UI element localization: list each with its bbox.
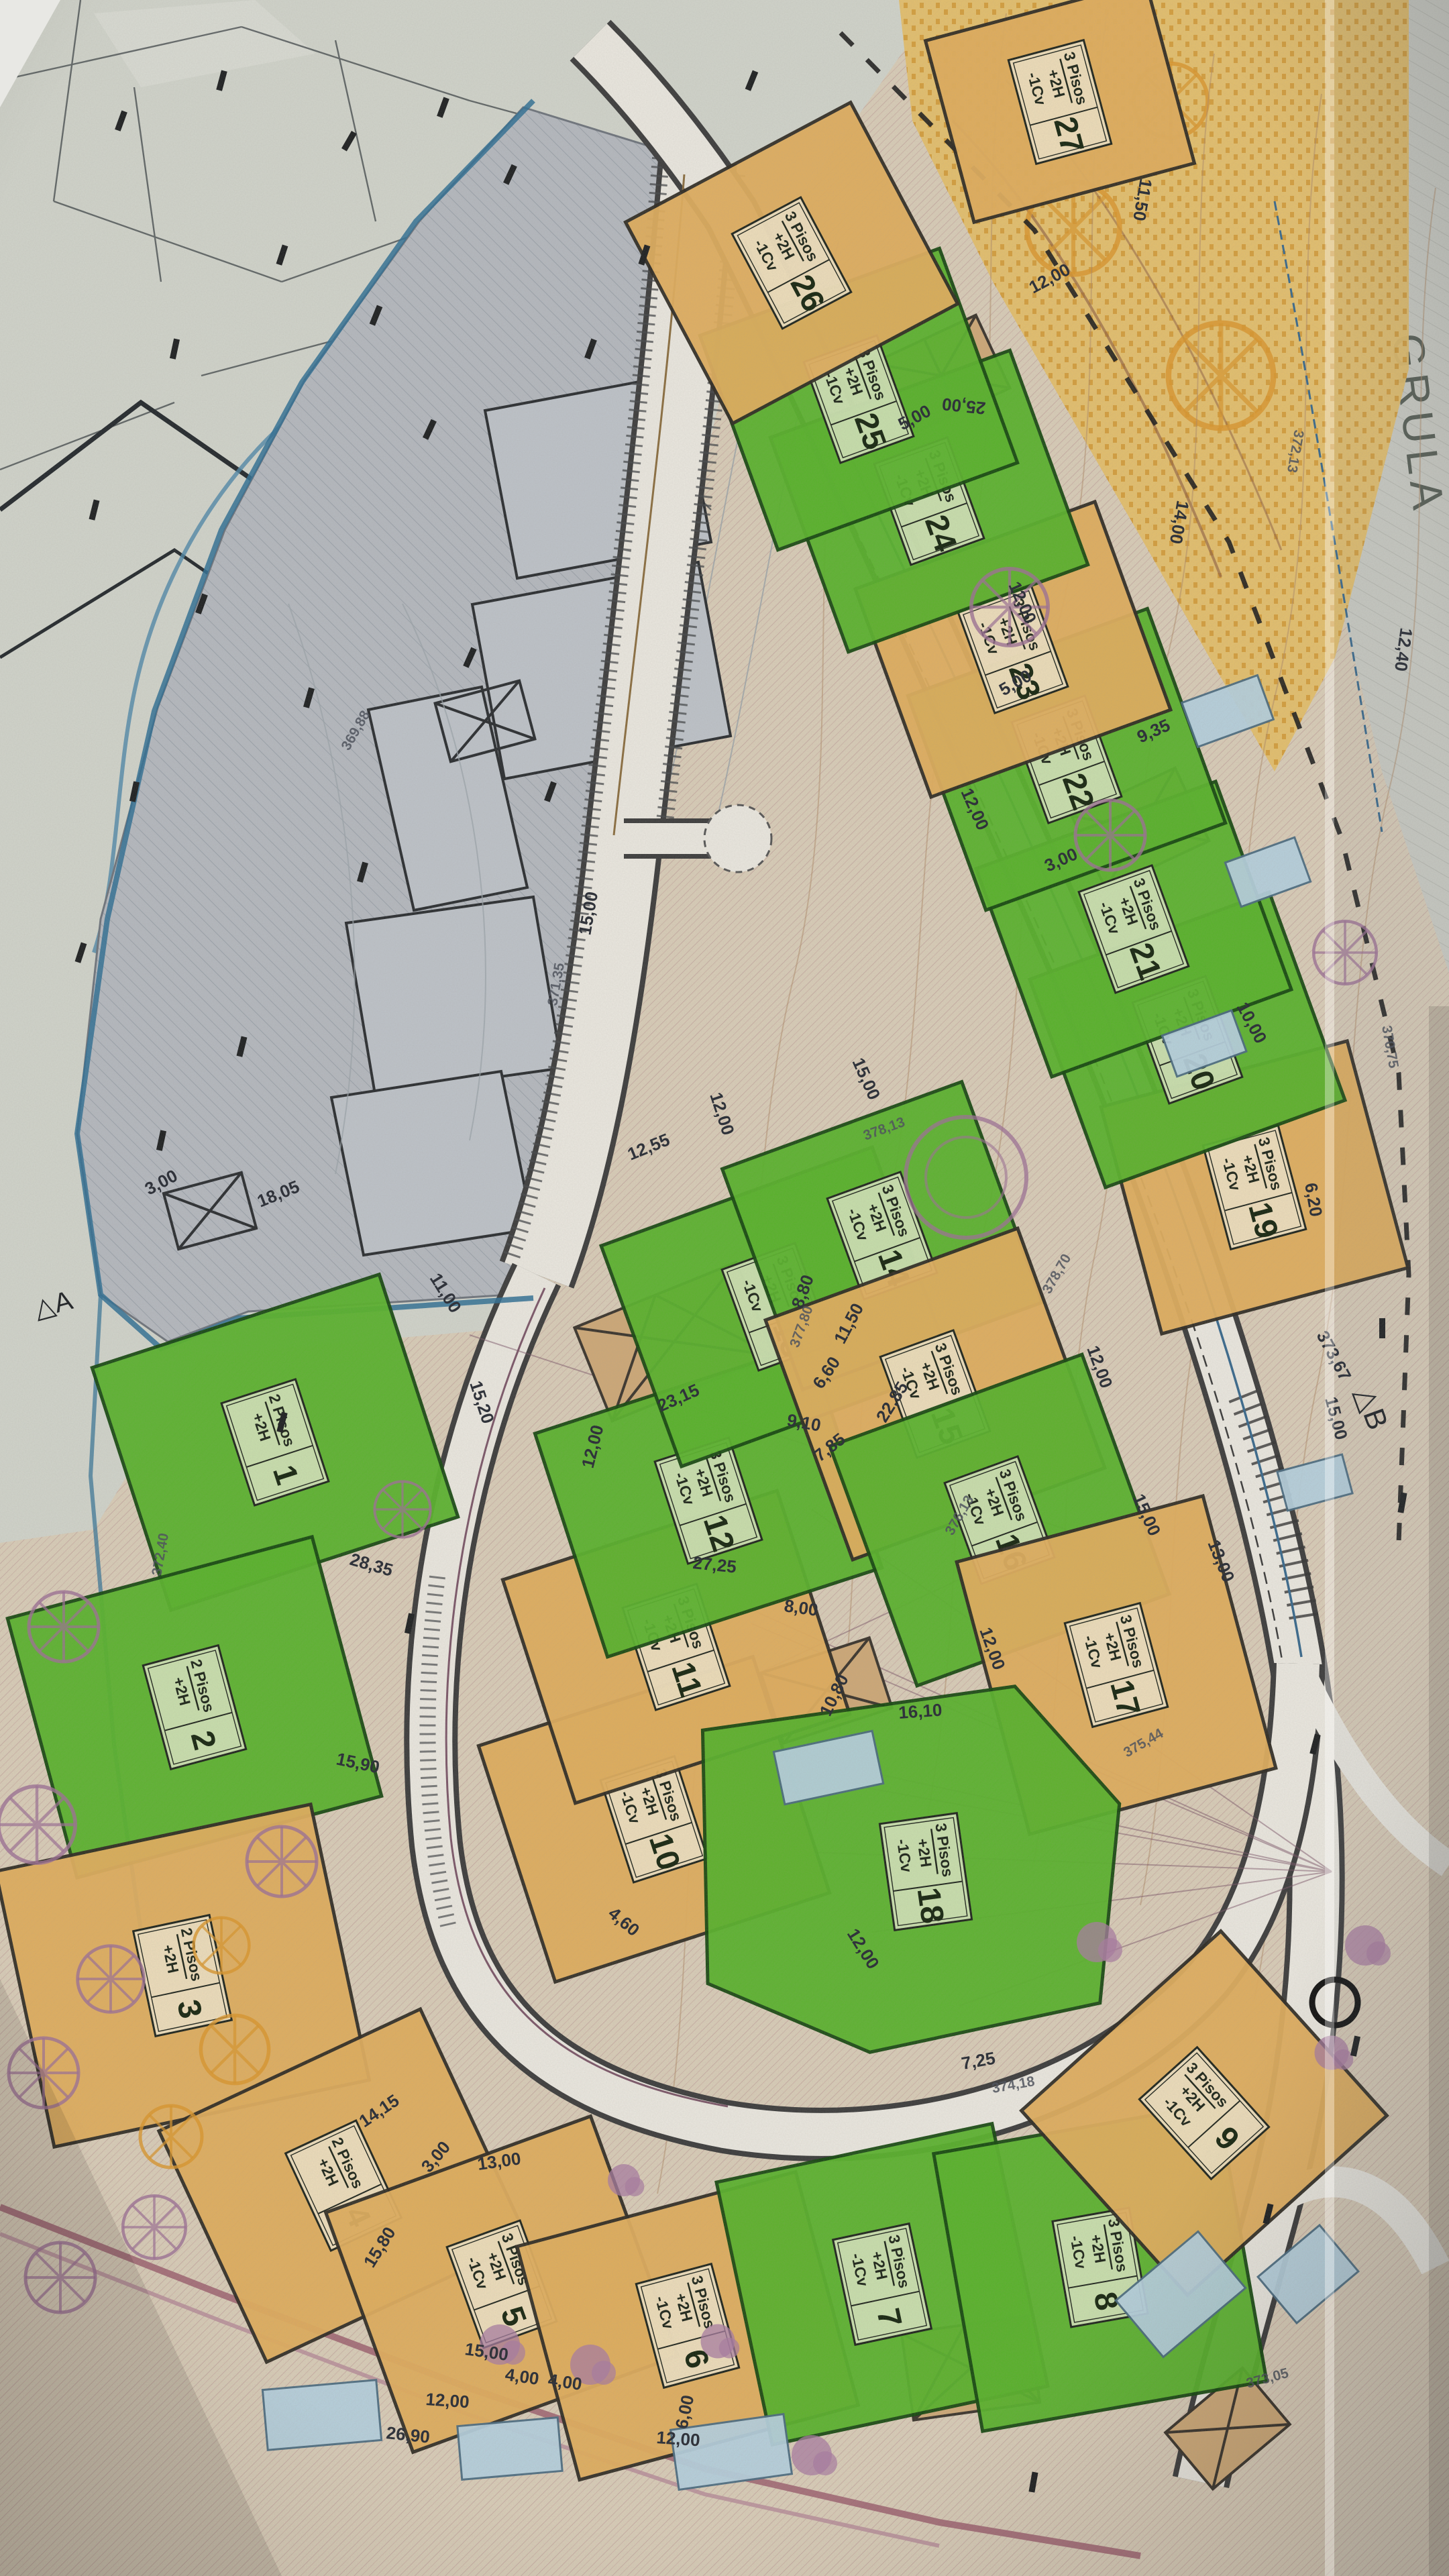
fold-crease [1325, 0, 1334, 2576]
site-plan-svg: GRULA [0, 0, 1449, 2576]
site-plan-photo: GRULA [0, 0, 1449, 2576]
paper-effects [0, 0, 1449, 2576]
